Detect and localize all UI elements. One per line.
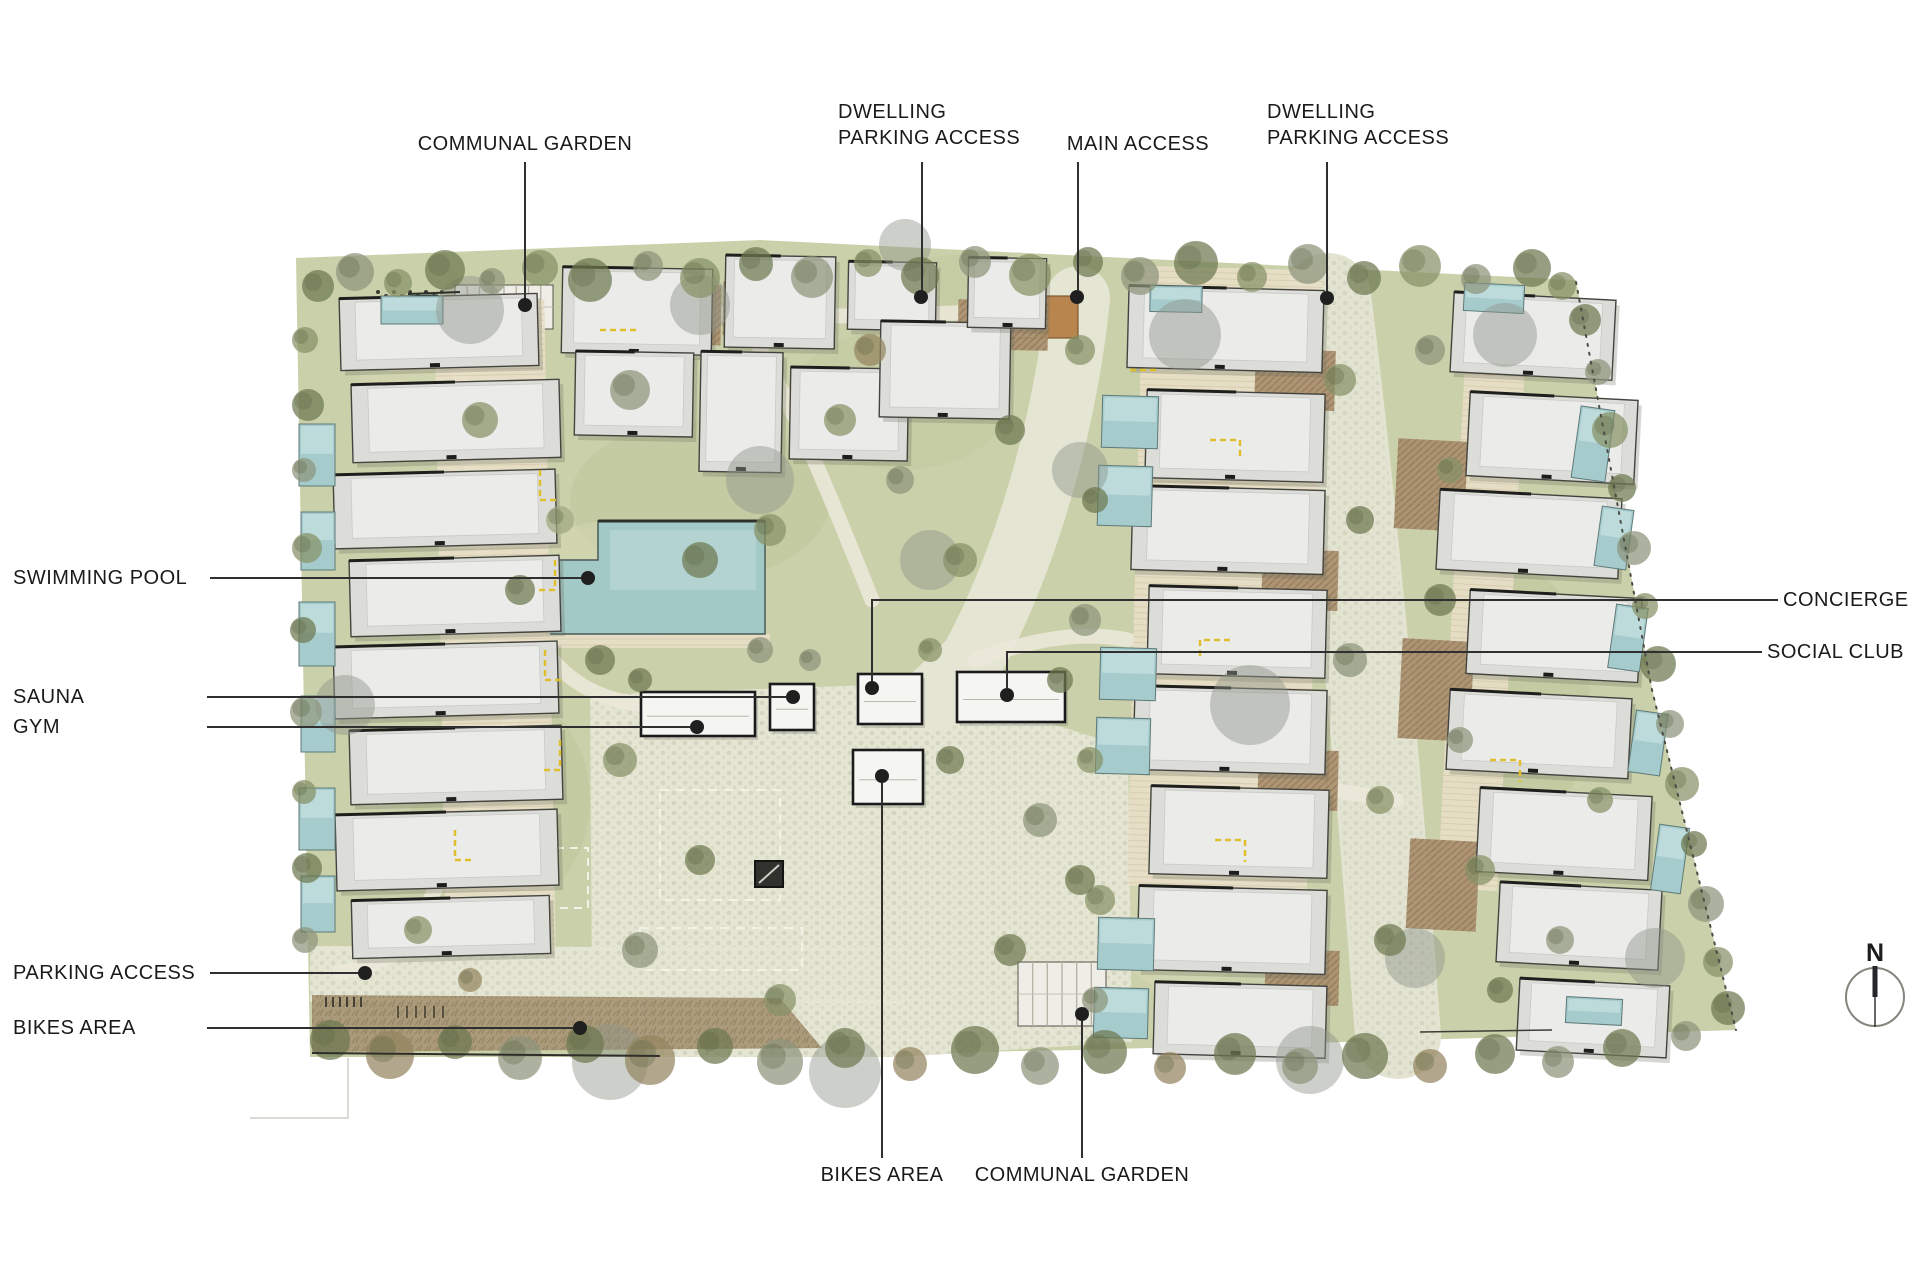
label-social-club: SOCIAL CLUB [1767, 639, 1904, 665]
label-communal-garden-bottom: COMMUNAL GARDEN [975, 1162, 1190, 1188]
label-dwelling-parking-access-right: DWELLING PARKING ACCESS [1267, 99, 1449, 151]
label-sauna: SAUNA [13, 684, 84, 710]
label-gym: GYM [13, 714, 60, 740]
label-parking-access: PARKING ACCESS [13, 960, 195, 986]
north-arrow-letter: N [1866, 939, 1884, 967]
label-dwelling-parking-access-left-line2: PARKING ACCESS [838, 125, 1020, 151]
label-dwelling-parking-access-left-line1: DWELLING [838, 99, 1020, 125]
north-arrow: N [1846, 939, 1904, 1027]
label-bikes-area-bottom: BIKES AREA [821, 1162, 944, 1188]
label-dwelling-parking-access-left: DWELLING PARKING ACCESS [838, 99, 1020, 151]
label-bikes-area-left: BIKES AREA [13, 1015, 136, 1041]
label-main-access: MAIN ACCESS [1067, 131, 1209, 157]
site-plan-rendering: N [0, 0, 1920, 1280]
site-plan-page: N COMMUNAL GARDEN DWELLING PARKING ACCES… [0, 0, 1920, 1280]
label-dwelling-parking-access-right-line1: DWELLING [1267, 99, 1449, 125]
label-communal-garden-top: COMMUNAL GARDEN [418, 131, 633, 157]
label-dwelling-parking-access-right-line2: PARKING ACCESS [1267, 125, 1449, 151]
label-swimming-pool: SWIMMING POOL [13, 565, 187, 591]
label-concierge: CONCIERGE [1783, 587, 1909, 613]
